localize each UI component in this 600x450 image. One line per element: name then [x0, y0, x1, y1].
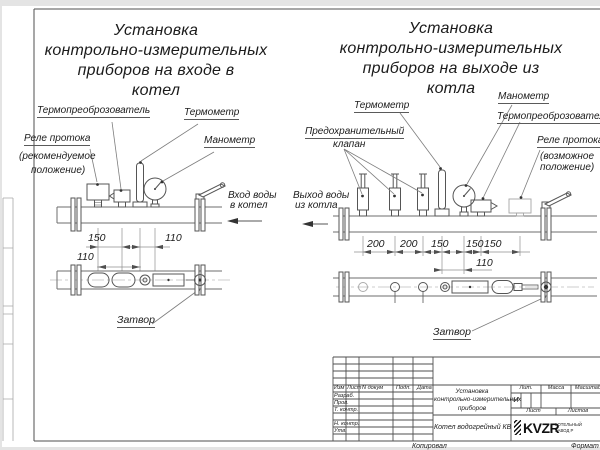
left-title-line: приборов на входе в	[28, 61, 284, 81]
outlet-flow-arrow	[302, 221, 328, 227]
label-thermometer-right: Термометр	[354, 101, 409, 113]
right-title-line: Установка	[320, 19, 582, 39]
rev-col-list: Лист	[347, 386, 361, 392]
dim-right-110: 110	[476, 258, 493, 269]
left-top-view	[50, 265, 232, 295]
label-flow-relay-note1-right: (возможное	[540, 152, 594, 162]
right-dimension-arrows	[363, 250, 520, 272]
right-thermo-converter-device	[471, 200, 497, 216]
dim-left-110b: 110	[77, 252, 94, 263]
doc-title-line: Установка	[434, 388, 510, 396]
sheets-label: Листов	[556, 409, 600, 415]
role-razrab: Разраб.	[334, 394, 354, 400]
right-pipe	[333, 216, 597, 232]
margin-cells	[3, 198, 13, 441]
left-title-line: контрольно-измерительных	[28, 41, 284, 61]
dim-right-150b: 150	[466, 239, 484, 250]
role-prov: Пров.	[334, 401, 349, 407]
rev-col-ndoc: N докум	[362, 386, 383, 392]
flow-relay-device	[87, 184, 109, 207]
lit-label: Лит.	[511, 386, 541, 392]
right-thermometer-device	[435, 170, 449, 216]
sheet-label: Лист	[511, 409, 556, 415]
dim-right-150c: 150	[484, 239, 502, 250]
label-valve-right: Затвор	[433, 327, 471, 340]
right-title-line: контрольно-измерительных	[320, 39, 582, 59]
label-thermo-converter-left: Термопреоброзователь	[37, 106, 150, 118]
role-utv: Утв.	[334, 429, 347, 435]
kvzr-logo-sub1: КОТЕЛЬНЫЙ	[555, 422, 582, 427]
label-flow-relay-note2-right: положение)	[540, 163, 594, 173]
left-pipe-flange	[71, 198, 81, 231]
doc-title-line: приборов	[434, 405, 510, 413]
dim-right-200b: 200	[400, 239, 418, 250]
label-manometer-right: Манометр	[498, 92, 549, 104]
left-figure-title: Установка контрольно-измерительных прибо…	[28, 21, 284, 101]
role-tcontr: Т. контр.	[334, 408, 358, 414]
label-outlet-caption2: из котла	[295, 201, 338, 211]
label-safety-valve-line1: Предохранительный	[305, 127, 404, 139]
kvzr-logo-sub2: ЗАВОД Р	[555, 428, 573, 433]
thermo-converter-device	[110, 190, 131, 207]
dim-right-200a: 200	[367, 239, 385, 250]
doc-title-line: контрольно-измерительных	[434, 396, 510, 404]
mass-label: Масса	[541, 386, 571, 392]
label-flow-relay-left: Реле протока	[24, 134, 90, 146]
lit-value: И	[511, 397, 521, 404]
label-inlet-caption2: в котел	[230, 201, 267, 211]
dim-right-150a: 150	[431, 239, 449, 250]
label-flow-relay-note2-left: положение)	[31, 166, 85, 176]
label-valve-left: Затвор	[117, 315, 155, 328]
left-title-line: Установка	[28, 21, 284, 41]
label-flow-relay-note1-left: (рекомендуемое	[19, 152, 96, 162]
dim-left-110a: 110	[165, 233, 182, 244]
left-dimension-arrows	[90, 245, 163, 269]
rev-col-podp: Подп.	[396, 386, 411, 392]
rev-col-izm: Изм	[334, 386, 344, 392]
label-thermo-converter-right: Термопреоброзователь	[497, 112, 600, 124]
dim-left-150: 150	[88, 233, 106, 244]
left-title-line: котел	[28, 81, 284, 101]
label-manometer-left: Манометр	[204, 136, 255, 148]
right-pipe-flange	[339, 208, 349, 240]
right-figure-title: Установка контрольно-измерительных прибо…	[320, 19, 582, 99]
right-top-view	[333, 272, 597, 303]
role-ncontr: Н. контр.	[334, 422, 359, 428]
rev-col-data: Дата	[417, 386, 432, 392]
scale-label: Масштаб	[571, 386, 600, 392]
label-thermometer-left: Термометр	[184, 108, 239, 120]
kvzr-logo-text: KVZR	[523, 421, 559, 435]
right-title-line: приборов на выходе из	[320, 59, 582, 79]
inlet-flow-arrow	[227, 218, 262, 224]
doc-title: Установка контрольно-измерительных прибо…	[434, 388, 510, 413]
copied-label: Копировал	[412, 443, 447, 450]
right-flow-relay-possible	[509, 199, 531, 216]
kvzr-logo-mark	[514, 420, 521, 435]
label-safety-valve-line2: клапан	[333, 140, 365, 150]
drawing-canvas: Установка контрольно-измерительных прибо…	[0, 0, 600, 450]
safety-valves	[358, 174, 429, 216]
format-label: Формат	[571, 443, 599, 450]
label-flow-relay-right: Реле протока	[537, 136, 600, 148]
product-name: Котел водогрейный КВ	[434, 424, 510, 431]
